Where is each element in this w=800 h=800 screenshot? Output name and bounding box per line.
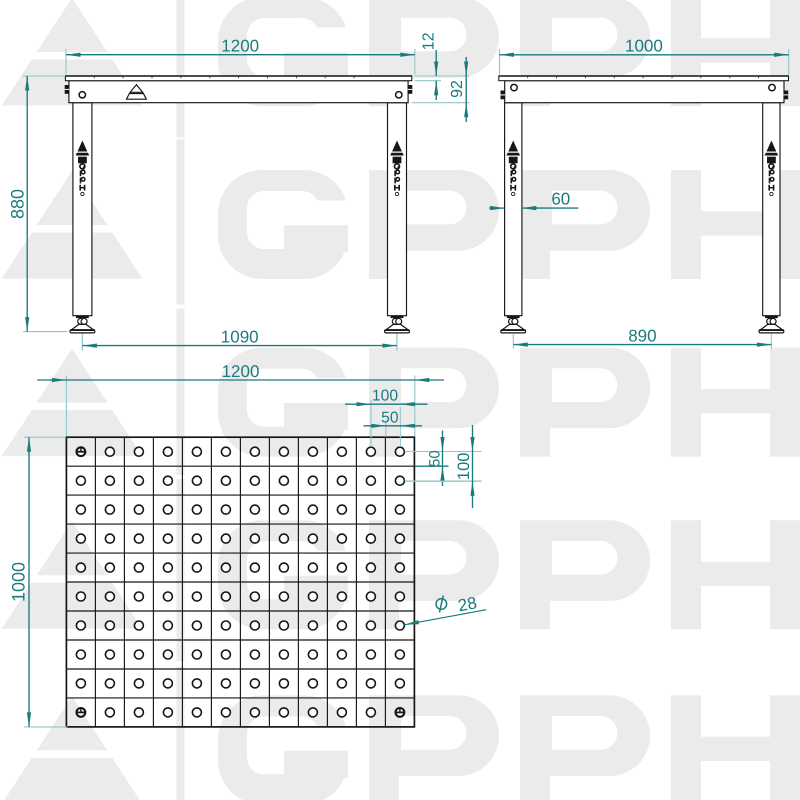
svg-text:100: 100 xyxy=(455,453,473,481)
svg-text:880: 880 xyxy=(7,189,27,219)
svg-text:50: 50 xyxy=(426,450,443,467)
svg-text:1200: 1200 xyxy=(221,37,259,56)
svg-text:1000: 1000 xyxy=(625,37,663,56)
svg-text:12: 12 xyxy=(421,32,438,50)
svg-text:92: 92 xyxy=(449,80,466,98)
svg-text:890: 890 xyxy=(628,326,656,345)
svg-text:50: 50 xyxy=(381,410,399,427)
svg-text:100: 100 xyxy=(372,387,398,404)
svg-text:1200: 1200 xyxy=(222,362,260,381)
svg-text:1090: 1090 xyxy=(221,327,259,346)
svg-text:60: 60 xyxy=(551,190,570,209)
svg-text:28: 28 xyxy=(456,593,478,615)
svg-text:1000: 1000 xyxy=(8,562,28,602)
